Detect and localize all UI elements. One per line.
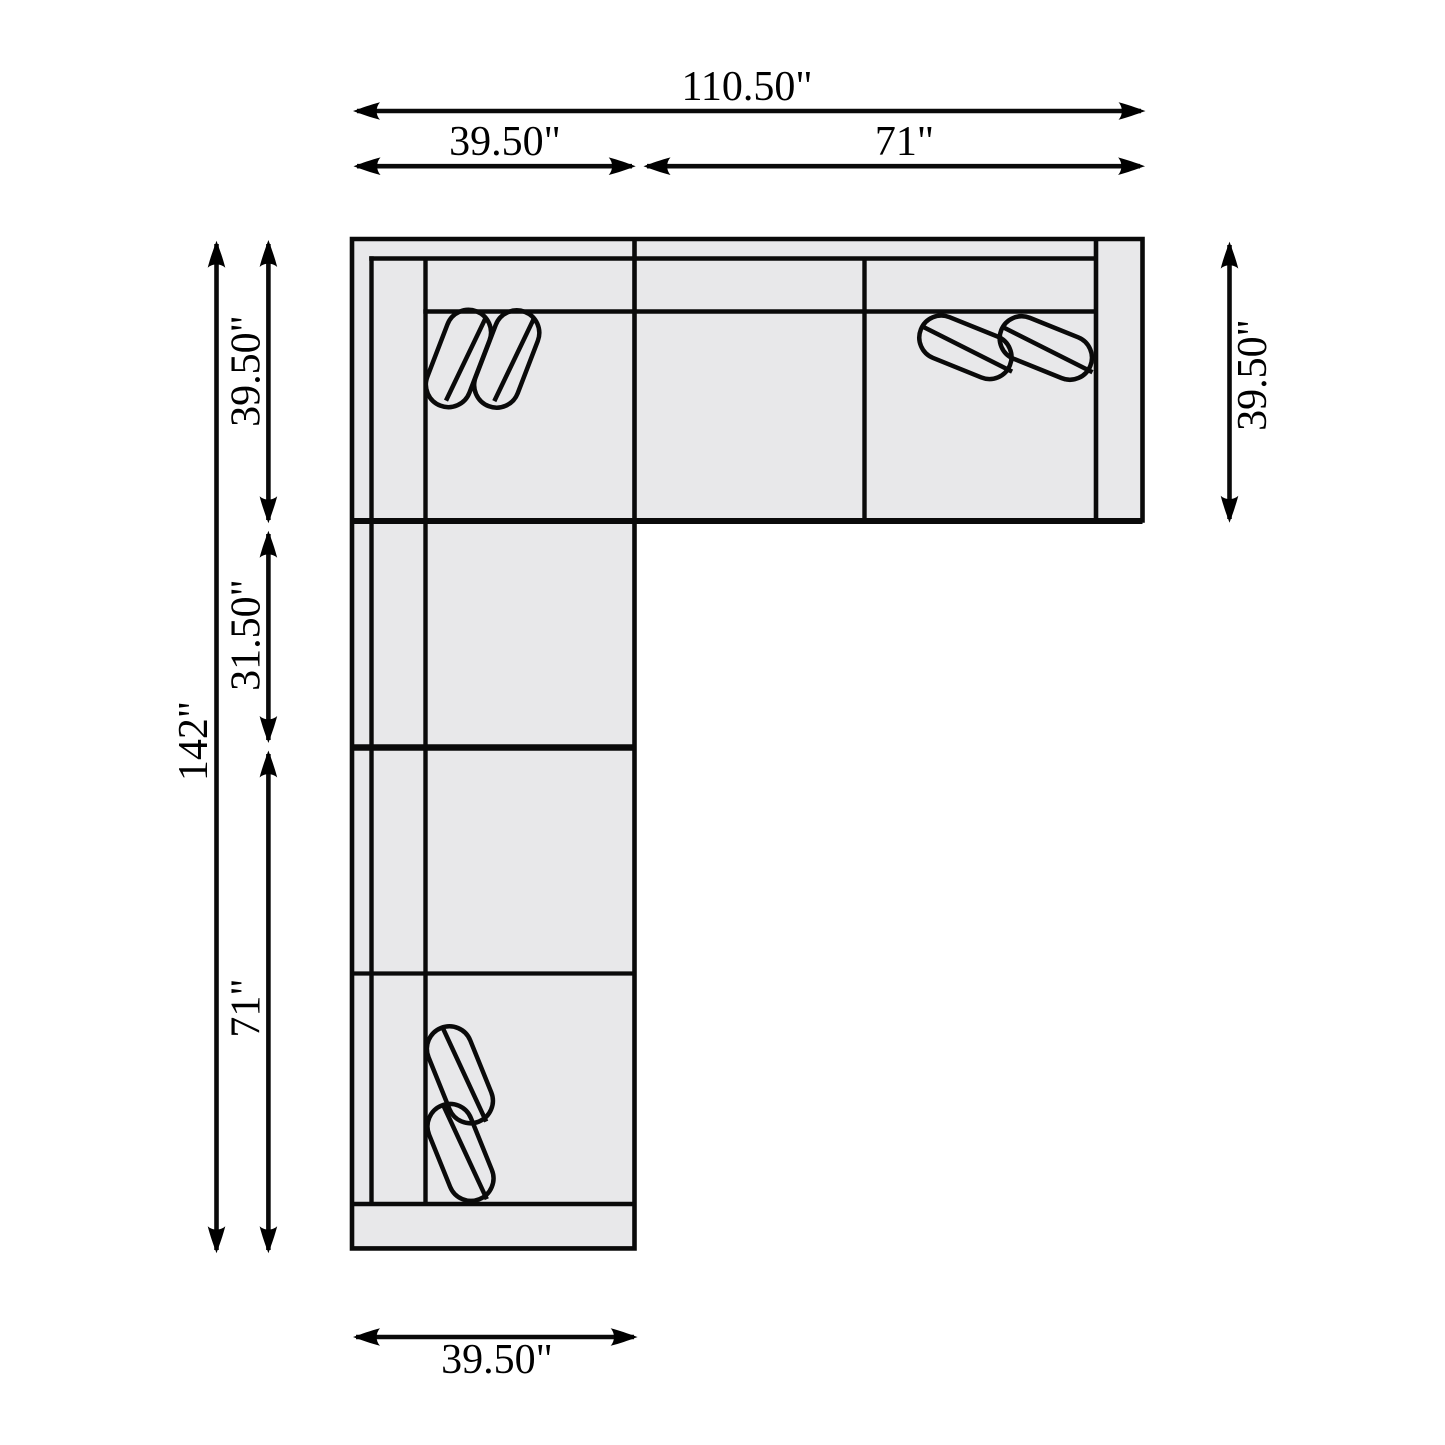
- svg-text:39.50": 39.50": [441, 1337, 553, 1383]
- svg-text:39.50": 39.50": [449, 119, 561, 165]
- svg-text:31.50": 31.50": [224, 579, 270, 691]
- svg-text:71": 71": [224, 978, 270, 1037]
- svg-text:142": 142": [171, 701, 217, 781]
- svg-text:110.50": 110.50": [681, 64, 812, 110]
- svg-text:39.50": 39.50": [224, 315, 270, 427]
- svg-text:39.50": 39.50": [1230, 319, 1276, 431]
- svg-text:71": 71": [875, 119, 934, 165]
